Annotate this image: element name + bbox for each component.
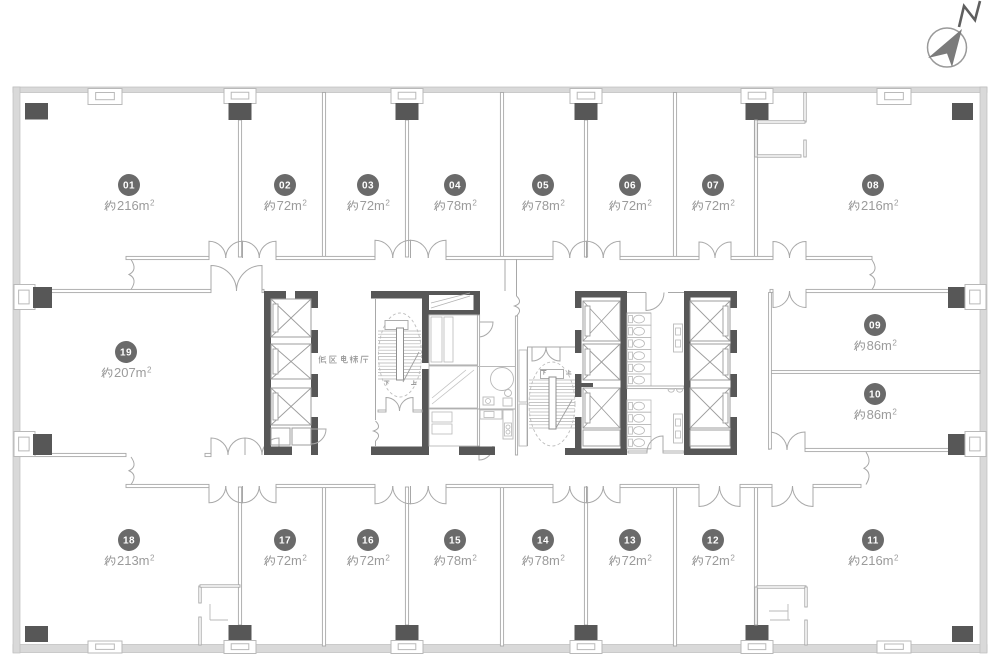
svg-text:01: 01 <box>123 181 135 192</box>
svg-text:07: 07 <box>707 181 719 192</box>
svg-text:2: 2 <box>892 408 897 417</box>
svg-text:2: 2 <box>647 554 652 563</box>
svg-text:72m: 72m <box>705 553 730 568</box>
svg-text:72m: 72m <box>622 198 647 213</box>
svg-text:72m: 72m <box>277 553 302 568</box>
svg-text:216m: 216m <box>861 198 894 213</box>
svg-text:72m: 72m <box>277 198 302 213</box>
svg-text:72m: 72m <box>360 198 385 213</box>
svg-text:2: 2 <box>150 199 155 208</box>
svg-text:02: 02 <box>279 181 291 192</box>
svg-text:15: 15 <box>449 536 461 547</box>
svg-text:2: 2 <box>385 554 390 563</box>
svg-text:13: 13 <box>624 536 636 547</box>
svg-text:09: 09 <box>869 321 881 332</box>
svg-text:78m: 78m <box>447 198 472 213</box>
svg-text:11: 11 <box>867 536 879 547</box>
svg-text:14: 14 <box>537 536 549 547</box>
svg-text:18: 18 <box>123 536 135 547</box>
svg-text:16: 16 <box>362 536 374 547</box>
svg-text:2: 2 <box>560 554 565 563</box>
svg-text:2: 2 <box>385 199 390 208</box>
svg-text:2: 2 <box>560 199 565 208</box>
svg-text:08: 08 <box>867 181 879 192</box>
svg-text:207m: 207m <box>114 365 147 380</box>
svg-text:216m: 216m <box>117 198 150 213</box>
svg-text:86m: 86m <box>867 338 892 353</box>
svg-text:2: 2 <box>472 554 477 563</box>
svg-text:19: 19 <box>120 348 132 359</box>
svg-text:17: 17 <box>279 536 291 547</box>
svg-text:78m: 78m <box>535 553 560 568</box>
svg-text:2: 2 <box>894 199 899 208</box>
svg-text:2: 2 <box>647 199 652 208</box>
svg-text:78m: 78m <box>535 198 560 213</box>
svg-text:06: 06 <box>624 181 636 192</box>
svg-text:86m: 86m <box>867 407 892 422</box>
svg-text:2: 2 <box>302 554 307 563</box>
svg-text:05: 05 <box>537 181 549 192</box>
svg-text:2: 2 <box>150 554 155 563</box>
svg-text:2: 2 <box>730 199 735 208</box>
svg-text:72m: 72m <box>705 198 730 213</box>
svg-text:78m: 78m <box>447 553 472 568</box>
svg-text:72m: 72m <box>360 553 385 568</box>
svg-text:2: 2 <box>892 339 897 348</box>
svg-text:10: 10 <box>869 390 881 401</box>
svg-text:03: 03 <box>362 181 374 192</box>
svg-text:72m: 72m <box>622 553 647 568</box>
svg-text:2: 2 <box>472 199 477 208</box>
svg-text:2: 2 <box>302 199 307 208</box>
svg-text:2: 2 <box>894 554 899 563</box>
svg-text:2: 2 <box>730 554 735 563</box>
svg-text:04: 04 <box>449 181 461 192</box>
svg-text:213m: 213m <box>117 553 150 568</box>
svg-text:216m: 216m <box>861 553 894 568</box>
svg-text:2: 2 <box>147 366 152 375</box>
svg-text:12: 12 <box>707 536 719 547</box>
